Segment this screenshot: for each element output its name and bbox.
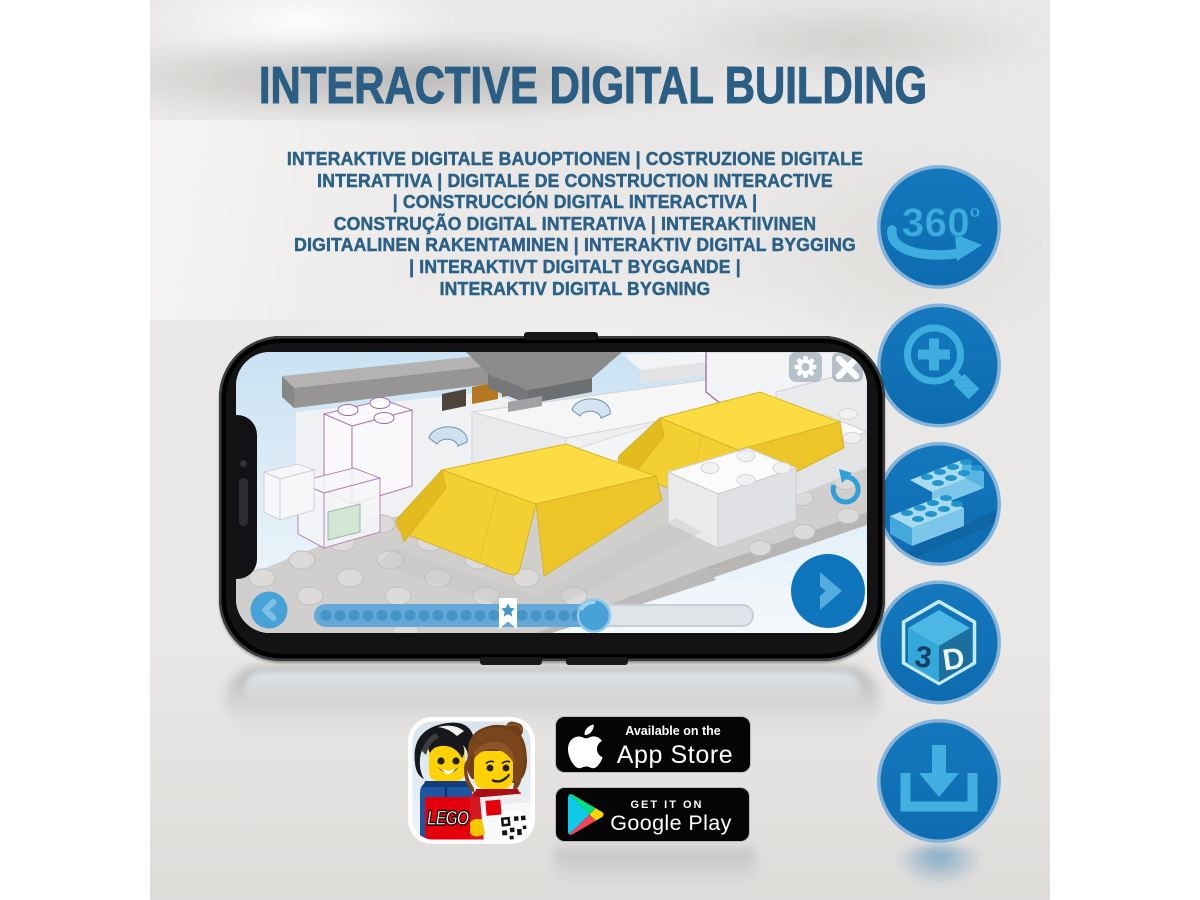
svg-text:App Store: App Store [617,741,734,769]
svg-text:LEGO: LEGO [427,806,470,830]
svg-text:Google Play: Google Play [610,811,732,835]
svg-text:360: 360 [902,201,970,245]
svg-text:GET IT ON: GET IT ON [631,799,704,811]
svg-text:D: D [941,642,967,678]
svg-text:o: o [970,202,980,221]
svg-text:Available on the: Available on the [625,724,720,738]
